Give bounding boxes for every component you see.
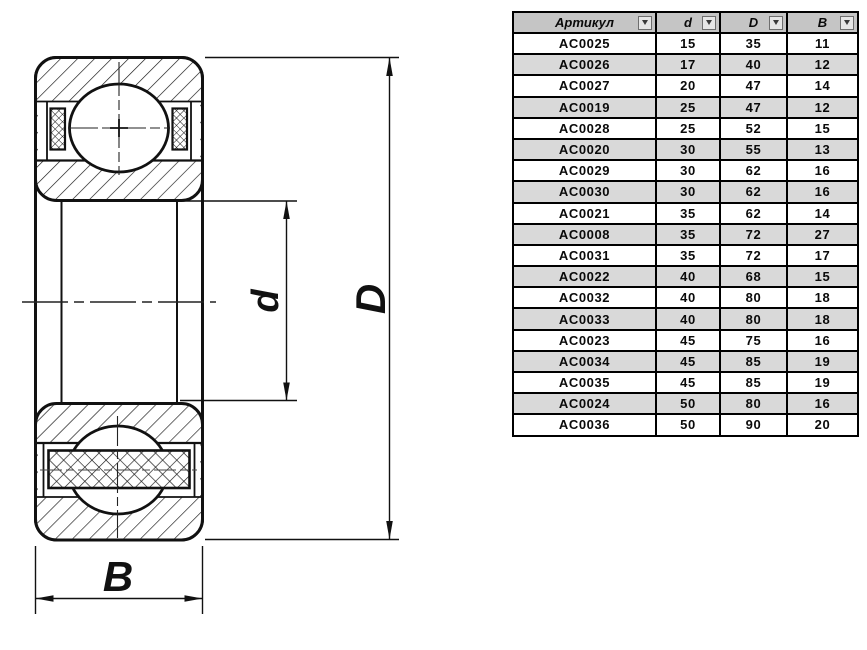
table-body: AC0025153511AC0026174012AC0027204714AC00… [513, 33, 858, 436]
cell: 30 [656, 139, 720, 160]
bearing-drawing: d D B [0, 0, 430, 650]
cell: AC0035 [513, 372, 656, 393]
table-row: AC0027204714 [513, 75, 858, 96]
cell: 40 [656, 266, 720, 287]
cell: AC0026 [513, 54, 656, 75]
cell: 20 [656, 75, 720, 96]
bearing-size-table: Артикул d D B [512, 11, 859, 437]
cell: 16 [787, 160, 858, 181]
filter-dropdown-button[interactable] [769, 16, 783, 30]
cell: AC0023 [513, 330, 656, 351]
cell: AC0024 [513, 393, 656, 414]
cell: AC0031 [513, 245, 656, 266]
cell: 13 [787, 139, 858, 160]
cell: 45 [656, 351, 720, 372]
cell: AC0029 [513, 160, 656, 181]
cell: AC0032 [513, 287, 656, 308]
cage-mesh [49, 451, 190, 489]
cell: 11 [787, 33, 858, 54]
cell: AC0034 [513, 351, 656, 372]
cell: 14 [787, 203, 858, 224]
table-row: AC0031357217 [513, 245, 858, 266]
column-label: B [818, 15, 827, 30]
chevron-down-icon [706, 20, 712, 25]
cell: AC0033 [513, 308, 656, 329]
cell: 45 [656, 330, 720, 351]
seal-right [173, 109, 188, 150]
table-row: AC0026174012 [513, 54, 858, 75]
chevron-down-icon [773, 20, 779, 25]
table-row: AC0034458519 [513, 351, 858, 372]
cell: 17 [787, 245, 858, 266]
label-bore-diameter: d [245, 289, 287, 313]
chevron-down-icon [642, 20, 648, 25]
cell: 47 [720, 97, 787, 118]
table-row: AC0023457516 [513, 330, 858, 351]
column-header-d[interactable]: d [656, 12, 720, 33]
table-row: AC0021356214 [513, 203, 858, 224]
cell: 40 [656, 287, 720, 308]
cell: 75 [720, 330, 787, 351]
table-row: AC0024508016 [513, 393, 858, 414]
cell: 17 [656, 54, 720, 75]
page: d D B Артикул [0, 0, 867, 650]
cell: AC0025 [513, 33, 656, 54]
cell: 80 [720, 308, 787, 329]
cell: AC0021 [513, 203, 656, 224]
bearing-table-panel: Артикул d D B [512, 11, 859, 437]
cell: 25 [656, 118, 720, 139]
cell: AC0030 [513, 181, 656, 202]
label-outer-diameter: D [347, 284, 394, 314]
filter-dropdown-button[interactable] [638, 16, 652, 30]
cell: AC0019 [513, 97, 656, 118]
column-label: d [684, 15, 692, 30]
table-row: AC0020305513 [513, 139, 858, 160]
cell: 40 [656, 308, 720, 329]
cell: 72 [720, 245, 787, 266]
table-row: AC0032408018 [513, 287, 858, 308]
cell: 62 [720, 181, 787, 202]
table-row: AC0036509020 [513, 414, 858, 435]
bearing-bottom-section [36, 404, 203, 541]
seal-left [51, 109, 66, 150]
label-width: B [103, 553, 133, 600]
cell: 19 [787, 351, 858, 372]
cell: 68 [720, 266, 787, 287]
cell: AC0020 [513, 139, 656, 160]
cell: 35 [656, 224, 720, 245]
cell: 80 [720, 287, 787, 308]
cell: AC0036 [513, 414, 656, 435]
cell: 30 [656, 160, 720, 181]
cell: AC0027 [513, 75, 656, 96]
table-row: AC0025153511 [513, 33, 858, 54]
cell: 35 [656, 203, 720, 224]
cell: AC0022 [513, 266, 656, 287]
cell: 16 [787, 393, 858, 414]
table-row: AC0022406815 [513, 266, 858, 287]
cell: 18 [787, 308, 858, 329]
cell: 52 [720, 118, 787, 139]
cell: 12 [787, 97, 858, 118]
cell: 12 [787, 54, 858, 75]
cell: 62 [720, 160, 787, 181]
cell: AC0028 [513, 118, 656, 139]
cell: 15 [787, 118, 858, 139]
cell: 72 [720, 224, 787, 245]
cell: 19 [787, 372, 858, 393]
table-row: AC0030306216 [513, 181, 858, 202]
cell: 30 [656, 181, 720, 202]
table-row: AC0033408018 [513, 308, 858, 329]
chevron-down-icon [844, 20, 850, 25]
cell: 27 [787, 224, 858, 245]
column-header-B[interactable]: B [787, 12, 858, 33]
cell: 15 [787, 266, 858, 287]
cell: 62 [720, 203, 787, 224]
cell: 25 [656, 97, 720, 118]
cell: 40 [720, 54, 787, 75]
cell: 85 [720, 372, 787, 393]
table-row: AC0008357227 [513, 224, 858, 245]
cell: 55 [720, 139, 787, 160]
header-row: Артикул d D B [513, 12, 858, 33]
column-label: Артикул [555, 15, 614, 30]
cell: 35 [720, 33, 787, 54]
cell: 20 [787, 414, 858, 435]
cell: 35 [656, 245, 720, 266]
column-header-D[interactable]: D [720, 12, 787, 33]
cell: 15 [656, 33, 720, 54]
filter-dropdown-button[interactable] [840, 16, 854, 30]
cell: 50 [656, 393, 720, 414]
cell: 14 [787, 75, 858, 96]
cell: 47 [720, 75, 787, 96]
cell: 45 [656, 372, 720, 393]
cell: AC0008 [513, 224, 656, 245]
cell: 80 [720, 393, 787, 414]
cell: 90 [720, 414, 787, 435]
table-row: AC0029306216 [513, 160, 858, 181]
table-row: AC0035458519 [513, 372, 858, 393]
filter-dropdown-button[interactable] [702, 16, 716, 30]
cell: 16 [787, 181, 858, 202]
bearing-top-section [36, 58, 203, 201]
cell: 85 [720, 351, 787, 372]
cell: 18 [787, 287, 858, 308]
table-row: AC0028255215 [513, 118, 858, 139]
cell: 16 [787, 330, 858, 351]
cell: 50 [656, 414, 720, 435]
column-header-article[interactable]: Артикул [513, 12, 656, 33]
column-label: D [749, 15, 758, 30]
table-row: AC0019254712 [513, 97, 858, 118]
